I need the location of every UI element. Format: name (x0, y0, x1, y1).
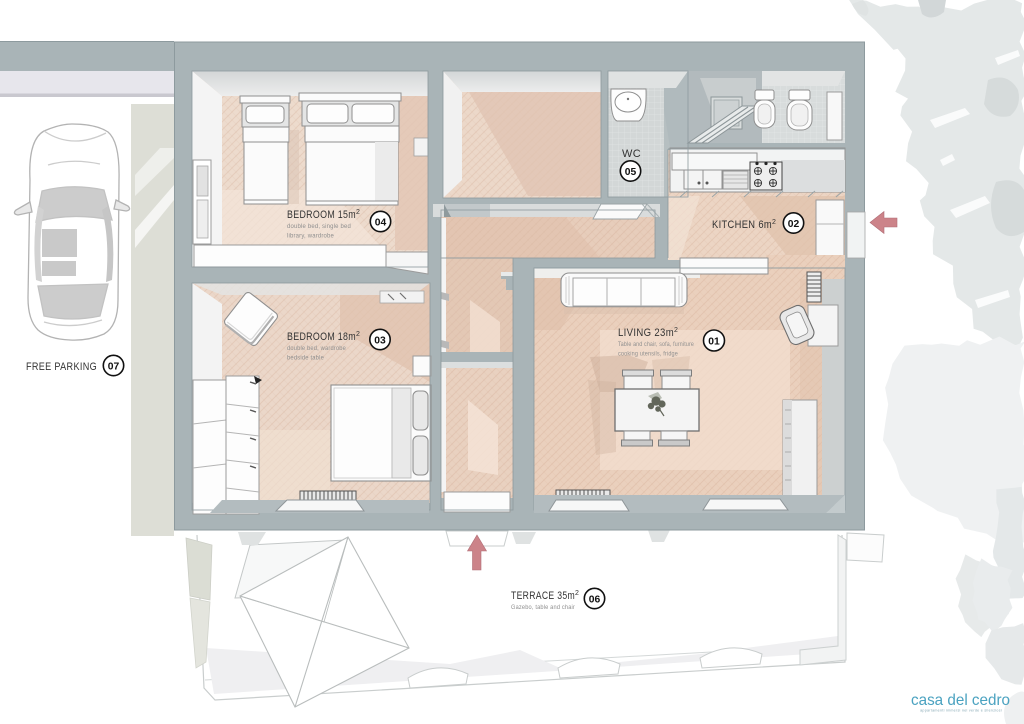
svg-text:WC: WC (622, 148, 641, 160)
svg-text:cooking utensils, fridge: cooking utensils, fridge (618, 351, 678, 358)
svg-text:03: 03 (374, 335, 386, 347)
svg-text:Table and chair, sofa, furnitu: Table and chair, sofa, furniture (618, 341, 694, 348)
svg-text:BEDROOM 15m2: BEDROOM 15m2 (287, 209, 360, 221)
svg-text:LIVING 23m2: LIVING 23m2 (618, 327, 678, 339)
svg-text:FREE PARKING: FREE PARKING (26, 361, 97, 373)
svg-text:library, wardrobe: library, wardrobe (287, 233, 334, 240)
svg-text:TERRACE 35m2: TERRACE 35m2 (511, 590, 579, 602)
svg-text:07: 07 (108, 361, 120, 373)
svg-text:appartamenti immersi nel verde: appartamenti immersi nel verde e silenzi… (920, 709, 1002, 713)
svg-text:bedside table: bedside table (287, 355, 324, 362)
svg-text:06: 06 (589, 594, 601, 606)
svg-text:02: 02 (788, 218, 800, 230)
svg-text:Gazebo, table and chair: Gazebo, table and chair (511, 604, 576, 611)
svg-text:05: 05 (625, 166, 637, 178)
svg-text:BEDROOM 18m2: BEDROOM 18m2 (287, 331, 360, 343)
svg-text:01: 01 (708, 336, 720, 348)
svg-text:casa del cedro: casa del cedro (911, 692, 1010, 709)
svg-text:04: 04 (375, 217, 387, 229)
svg-text:double bed, wardrobe: double bed, wardrobe (287, 345, 346, 352)
svg-text:double bed, single bed: double bed, single bed (287, 223, 351, 230)
svg-text:KITCHEN 6m2: KITCHEN 6m2 (712, 219, 776, 231)
